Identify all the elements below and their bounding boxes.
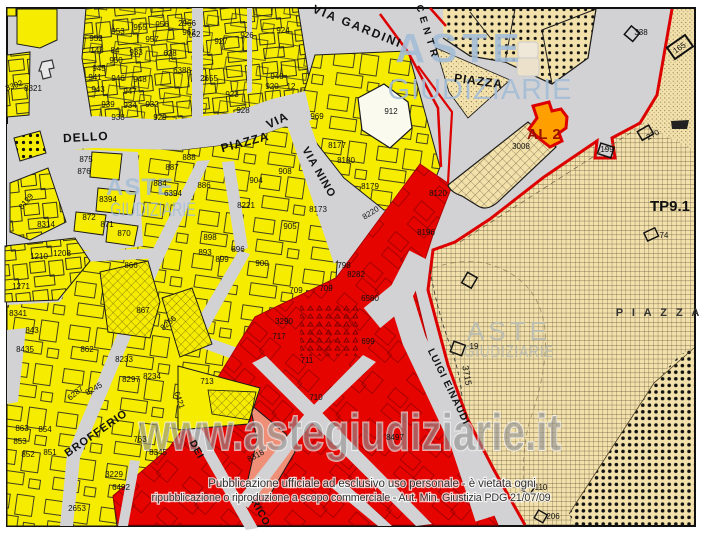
svg-text:896: 896 xyxy=(231,245,245,254)
svg-text:84: 84 xyxy=(111,46,120,55)
svg-text:8297: 8297 xyxy=(122,375,140,384)
svg-text:871: 871 xyxy=(100,220,114,229)
svg-text:862: 862 xyxy=(80,345,94,354)
svg-text:8221: 8221 xyxy=(237,201,255,210)
svg-text:888: 888 xyxy=(182,153,196,162)
svg-text:908: 908 xyxy=(278,167,292,176)
svg-text:717: 717 xyxy=(272,332,286,341)
svg-text:927: 927 xyxy=(214,37,228,46)
svg-text:852: 852 xyxy=(21,450,35,459)
svg-text:926: 926 xyxy=(240,31,254,40)
svg-text:6492: 6492 xyxy=(112,483,130,492)
svg-text:AL 2: AL 2 xyxy=(527,126,561,143)
svg-text:3290: 3290 xyxy=(275,317,293,326)
svg-text:1210: 1210 xyxy=(30,252,48,261)
svg-text:955: 955 xyxy=(133,23,147,32)
svg-text:946: 946 xyxy=(111,74,125,83)
svg-text:876: 876 xyxy=(77,167,91,176)
svg-text:8321: 8321 xyxy=(24,84,42,93)
svg-text:952: 952 xyxy=(89,34,103,43)
svg-text:900: 900 xyxy=(255,259,269,268)
svg-text:6580: 6580 xyxy=(361,294,379,303)
svg-text:928: 928 xyxy=(236,106,250,115)
svg-text:924: 924 xyxy=(276,26,290,35)
svg-text:956: 956 xyxy=(155,20,169,29)
svg-text:8341: 8341 xyxy=(9,309,27,318)
svg-text:8282: 8282 xyxy=(347,270,365,279)
svg-text:899: 899 xyxy=(215,255,229,264)
svg-text:1271: 1271 xyxy=(12,282,30,291)
svg-text:TP9.1: TP9.1 xyxy=(650,198,690,215)
svg-text:8173: 8173 xyxy=(309,205,327,214)
svg-text:710: 710 xyxy=(309,393,323,402)
svg-text:870: 870 xyxy=(117,229,131,238)
svg-text:ASTE: ASTE xyxy=(467,316,551,346)
svg-text:8180: 8180 xyxy=(337,156,355,165)
svg-text:Pubblicazione ufficiale ad esc: Pubblicazione ufficiale ad esclusivo uso… xyxy=(208,478,535,490)
svg-text:872: 872 xyxy=(82,213,96,222)
svg-text:110: 110 xyxy=(535,483,548,492)
svg-text:8120: 8120 xyxy=(429,189,447,198)
svg-text:884: 884 xyxy=(153,179,167,188)
svg-text:709: 709 xyxy=(289,286,303,295)
svg-text:1208: 1208 xyxy=(53,249,71,258)
svg-text:945: 945 xyxy=(92,64,106,73)
svg-text:875: 875 xyxy=(79,155,93,164)
svg-text:3008: 3008 xyxy=(512,142,530,151)
svg-text:920: 920 xyxy=(265,82,279,91)
svg-text:206: 206 xyxy=(546,512,560,521)
svg-text:2653: 2653 xyxy=(68,504,86,513)
svg-text:GIUDIZIARIE: GIUDIZIARIE xyxy=(110,199,195,220)
svg-text:947: 947 xyxy=(123,87,137,96)
svg-text:8177: 8177 xyxy=(328,141,346,150)
svg-text:ASTE: ASTE xyxy=(395,25,524,71)
svg-text:8345: 8345 xyxy=(149,448,167,457)
svg-text:ripubblicazione o riproduzione: ripubblicazione o riproduzione a scopo c… xyxy=(152,492,551,504)
svg-text:8233: 8233 xyxy=(115,355,133,364)
svg-text:934: 934 xyxy=(123,101,137,110)
svg-text:950: 950 xyxy=(109,56,123,65)
svg-text:12: 12 xyxy=(287,82,296,91)
svg-text:957: 957 xyxy=(145,35,159,44)
svg-text:887: 887 xyxy=(165,163,179,172)
svg-text:P I A Z Z A: P I A Z Z A xyxy=(616,307,703,319)
svg-text:338: 338 xyxy=(634,28,648,37)
svg-text:763: 763 xyxy=(133,435,147,444)
svg-text:8314: 8314 xyxy=(37,220,55,229)
svg-text:6394: 6394 xyxy=(164,189,182,198)
svg-text:938: 938 xyxy=(111,113,125,122)
svg-text:853: 853 xyxy=(13,437,27,446)
svg-text:699: 699 xyxy=(361,337,375,346)
svg-text:2655: 2655 xyxy=(200,74,218,83)
svg-text:8435: 8435 xyxy=(16,345,34,354)
svg-text:939: 939 xyxy=(101,100,115,109)
svg-text:898: 898 xyxy=(203,233,217,242)
svg-text:854: 854 xyxy=(38,425,52,434)
svg-text:866: 866 xyxy=(124,261,138,270)
svg-text:929: 929 xyxy=(153,113,167,122)
svg-text:912: 912 xyxy=(384,107,398,116)
svg-text:905: 905 xyxy=(283,222,297,231)
svg-text:923: 923 xyxy=(225,90,239,99)
svg-text:941: 941 xyxy=(88,73,102,82)
svg-text:74: 74 xyxy=(660,231,669,240)
svg-text:8234: 8234 xyxy=(143,372,161,381)
svg-text:943: 943 xyxy=(91,85,105,94)
svg-text:6388: 6388 xyxy=(173,66,191,75)
svg-text:713: 713 xyxy=(200,377,214,386)
svg-text:19: 19 xyxy=(470,342,479,351)
svg-text:628: 628 xyxy=(163,49,177,58)
svg-text:962: 962 xyxy=(182,28,196,37)
svg-text:8497: 8497 xyxy=(386,433,404,442)
svg-text:148: 148 xyxy=(90,46,104,55)
svg-text:8179: 8179 xyxy=(361,182,379,191)
svg-text:940: 940 xyxy=(270,72,284,81)
svg-text:843: 843 xyxy=(25,326,39,335)
svg-text:933: 933 xyxy=(129,48,143,57)
svg-text:DELLO: DELLO xyxy=(63,129,109,145)
svg-text:863: 863 xyxy=(15,424,29,433)
svg-text:711: 711 xyxy=(301,356,314,365)
svg-text:8196: 8196 xyxy=(417,228,435,237)
svg-text:851: 851 xyxy=(43,448,57,457)
svg-text:893: 893 xyxy=(198,248,212,257)
svg-text:867: 867 xyxy=(136,306,150,315)
svg-text:2966: 2966 xyxy=(178,19,196,28)
svg-text:904: 904 xyxy=(249,176,263,185)
svg-text:953: 953 xyxy=(111,27,125,36)
svg-text:969: 969 xyxy=(310,112,324,121)
svg-text:8394: 8394 xyxy=(99,195,117,204)
svg-text:199: 199 xyxy=(600,145,614,154)
svg-text:798: 798 xyxy=(337,261,351,270)
svg-text:709: 709 xyxy=(319,284,333,293)
svg-text:886: 886 xyxy=(197,181,211,190)
svg-text:3229: 3229 xyxy=(105,470,123,479)
svg-text:948: 948 xyxy=(133,75,147,84)
svg-text:932: 932 xyxy=(145,100,159,109)
